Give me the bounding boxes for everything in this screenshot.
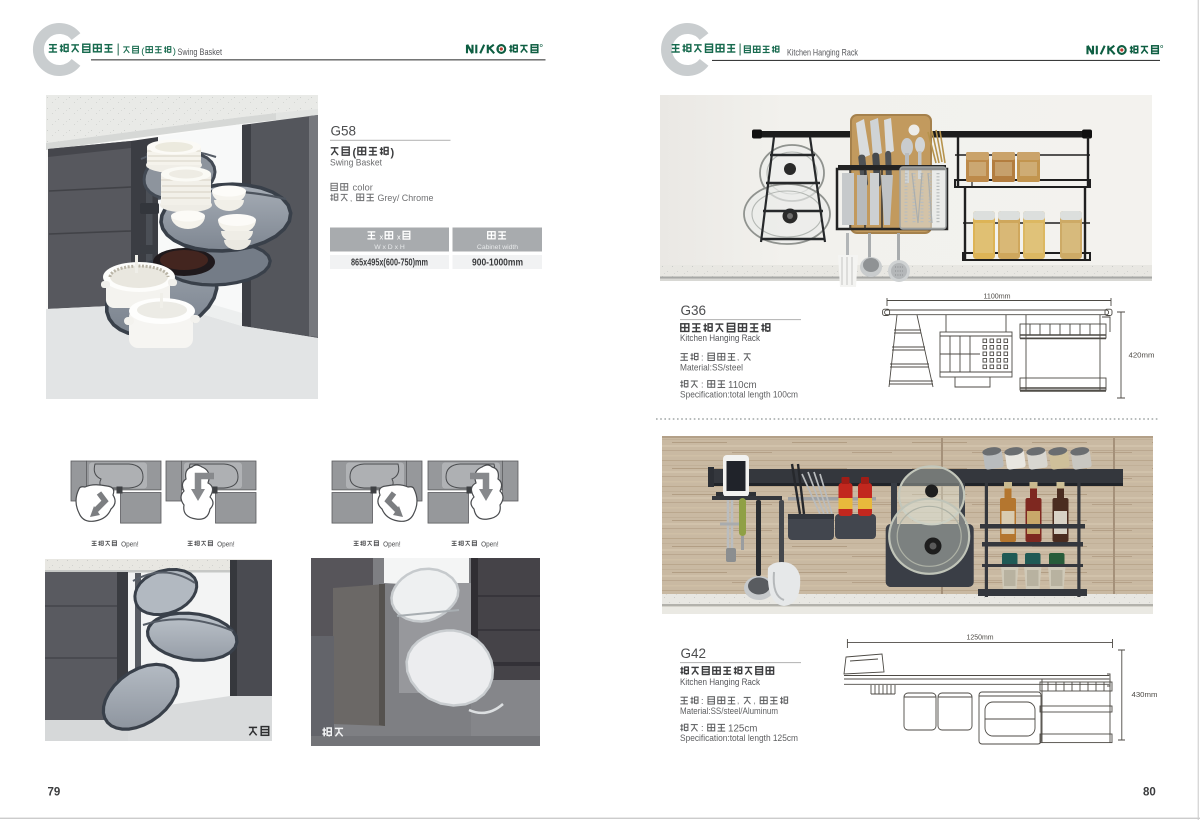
- svg-text:Open!: Open!: [383, 542, 401, 549]
- svg-text:Specification:total length 125: Specification:total length 125cm: [680, 733, 798, 743]
- svg-text:W x D x H: W x D x H: [374, 244, 405, 251]
- svg-text:900-1000mm: 900-1000mm: [472, 257, 523, 268]
- svg-text:G58: G58: [331, 124, 357, 139]
- svg-text::: :: [701, 696, 704, 706]
- svg-text:Material:SS/steel/Aluminum: Material:SS/steel/Aluminum: [680, 706, 778, 716]
- svg-text::: :: [701, 380, 704, 390]
- svg-text:Swing Basket: Swing Basket: [178, 47, 223, 57]
- svg-text:color: color: [353, 182, 373, 193]
- svg-text:Material:SS/steel: Material:SS/steel: [680, 363, 743, 373]
- svg-text:Kitchen Hanging Rack: Kitchen Hanging Rack: [787, 47, 858, 57]
- svg-text:G36: G36: [681, 303, 707, 318]
- svg-text:430mm: 430mm: [1132, 690, 1158, 699]
- svg-text:,: ,: [737, 353, 739, 362]
- svg-text:,: ,: [737, 697, 739, 706]
- svg-text:Swing Basket: Swing Basket: [330, 157, 382, 168]
- svg-text:Kitchen Hanging Rack: Kitchen Hanging Rack: [680, 677, 760, 688]
- svg-text:): ): [173, 46, 176, 57]
- svg-text:Open!: Open!: [481, 542, 499, 549]
- svg-text::: :: [701, 723, 704, 733]
- svg-text:865x495x(600-750)mm: 865x495x(600-750)mm: [351, 257, 428, 268]
- svg-text:79: 79: [48, 787, 61, 799]
- svg-text:Open!: Open!: [217, 542, 235, 549]
- svg-text:,: ,: [350, 194, 352, 203]
- svg-text:1250mm: 1250mm: [967, 635, 994, 642]
- svg-text:420mm: 420mm: [1129, 351, 1155, 360]
- svg-text:,: ,: [754, 697, 756, 706]
- svg-text::: :: [701, 352, 704, 362]
- svg-text:Open!: Open!: [121, 542, 139, 549]
- svg-text:1100mm: 1100mm: [984, 293, 1011, 300]
- svg-text:): ): [391, 147, 395, 159]
- svg-text:Specification:total length 100: Specification:total length 100cm: [680, 390, 798, 400]
- svg-text:80: 80: [1143, 787, 1156, 799]
- svg-text:Cabinet width: Cabinet width: [477, 244, 518, 251]
- svg-text:Kitchen Hanging Rack: Kitchen Hanging Rack: [680, 333, 760, 344]
- svg-text:x: x: [397, 232, 401, 241]
- svg-text:Grey/ Chrome: Grey/ Chrome: [378, 192, 434, 203]
- svg-text:G42: G42: [681, 646, 707, 661]
- svg-text:x: x: [380, 232, 384, 241]
